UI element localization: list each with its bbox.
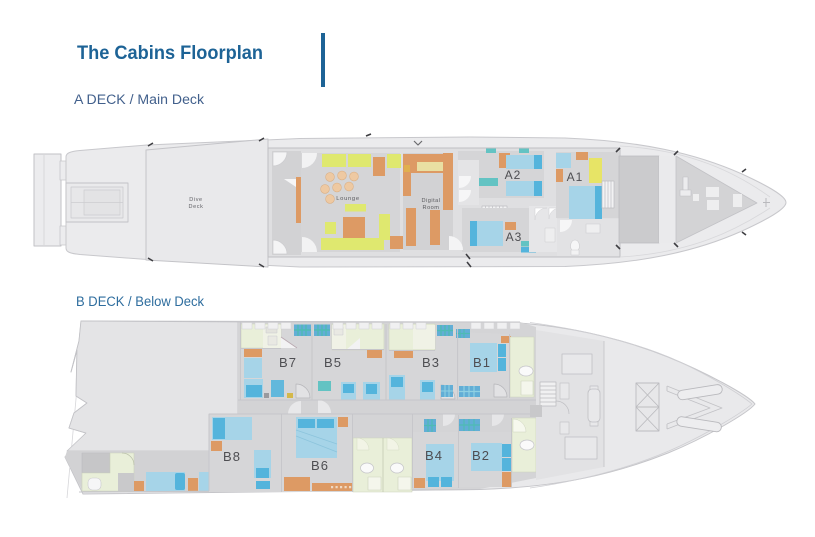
svg-text:Digital: Digital xyxy=(421,198,440,204)
svg-text:B5: B5 xyxy=(324,355,342,370)
svg-text:B8: B8 xyxy=(223,449,241,464)
svg-text:B7: B7 xyxy=(279,355,297,370)
svg-text:Deck: Deck xyxy=(189,204,204,210)
svg-text:Lounge: Lounge xyxy=(336,196,360,202)
svg-text:B1: B1 xyxy=(473,355,491,370)
svg-text:A2: A2 xyxy=(505,168,522,182)
svg-text:A3: A3 xyxy=(506,230,523,244)
svg-text:B3: B3 xyxy=(422,355,440,370)
svg-text:B4: B4 xyxy=(425,448,443,463)
svg-text:A1: A1 xyxy=(567,170,584,184)
svg-text:Room: Room xyxy=(423,205,440,211)
svg-text:B6: B6 xyxy=(311,458,329,473)
svg-text:B2: B2 xyxy=(472,448,490,463)
svg-text:Dive: Dive xyxy=(189,197,202,203)
svg-text:B DECK / Below Deck: B DECK / Below Deck xyxy=(76,294,204,309)
svg-text:The Cabins Floorplan: The Cabins Floorplan xyxy=(77,42,263,64)
svg-text:A DECK / Main Deck: A DECK / Main Deck xyxy=(74,92,204,107)
